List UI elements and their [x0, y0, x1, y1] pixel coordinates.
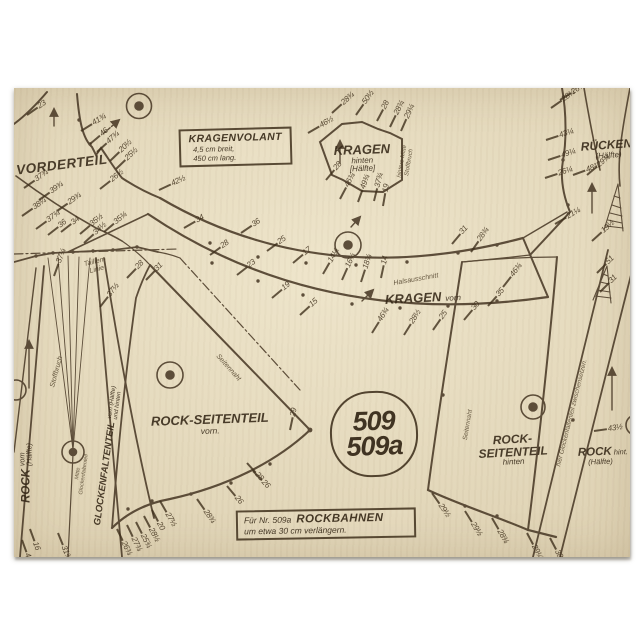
pleat-fan-lines: [48, 256, 90, 450]
pattern-line-art: [0, 0, 644, 644]
label-kragen-vorn-sub: vorn: [445, 294, 461, 303]
measure-value: 19: [381, 183, 390, 193]
label-rock-hinten-sub2: (Hälfte): [588, 457, 628, 466]
tick-line: [546, 135, 559, 140]
label-kragen-vorn-title: KRAGEN: [385, 290, 442, 307]
rockbahnen-note-box: Für Nr. 509a ROCKBAHNEN um etwa 30 cm ve…: [236, 507, 416, 540]
tick-line: [573, 170, 586, 176]
rockbahnen-prefix: Für Nr. 509a: [244, 515, 292, 526]
tick-line: [21, 540, 27, 553]
pattern-number-2: 509a: [346, 433, 403, 460]
label-rock-seitenteil-vorn: ROCK-SEITENTEIL vorn.: [151, 411, 269, 438]
tick-line: [464, 511, 472, 523]
tick-line: [159, 501, 167, 513]
tick-line: [126, 525, 133, 537]
tick-line: [380, 265, 384, 278]
product-photo: { "colors": { "paper": "#e7dcbd", "ink":…: [0, 0, 644, 644]
tick-line: [57, 533, 63, 545]
label-rock-vorn-sub2: (Hälfte): [27, 443, 34, 466]
tick-line: [29, 529, 35, 542]
tick-line: [548, 155, 561, 160]
measure-value: 14: [380, 255, 390, 265]
pattern-number-oval: 509 509a: [329, 389, 420, 478]
label-rock-vorn: ROCK vorn (Hälfte): [20, 443, 35, 503]
label-rock-vorn-title: ROCK: [21, 469, 33, 503]
label-rock-hinten-sub1: hint.: [614, 448, 628, 456]
rockbahnen-title: ROCKBAHNEN: [296, 512, 383, 526]
label-rock-seitenteil-hinten: ROCK- SEITENTEIL hinten: [477, 431, 548, 468]
tick-line: [289, 417, 293, 430]
label-rock-vorn-sub1: vorn: [20, 443, 27, 466]
tick-line: [373, 188, 377, 201]
tick-line: [159, 184, 171, 191]
label-kragen-hinten: KRAGEN hinten [Hälfte]: [333, 142, 390, 174]
tick-line: [53, 264, 59, 277]
measure-value: 29: [289, 407, 299, 417]
tick-line: [389, 115, 396, 127]
pattern-sheet-overlay: 2341¾4647¾20½25½26½37¾39¾29¾38¼42½3437¾3…: [0, 0, 644, 644]
tick-line: [545, 173, 558, 178]
tick-line: [341, 268, 347, 280]
tick-line: [526, 533, 533, 545]
kragenvolant-info-box: KRAGENVOLANT 4,5 cm breit, 450 cm lang.: [179, 127, 293, 168]
tick-line: [135, 522, 142, 534]
tick-line: [382, 193, 385, 206]
kragenvolant-line2: 450 cm lang.: [193, 152, 284, 163]
kragenvolant-title: KRAGENVOLANT: [187, 131, 284, 146]
tick-line: [357, 190, 363, 203]
rockbahnen-line2: um etwa 30 cm verlängern.: [244, 524, 408, 537]
label-rock-hinten: ROCK hint. (Hälfte): [578, 445, 629, 467]
tick-line: [360, 269, 365, 282]
tick-line: [549, 538, 556, 550]
label-rueckenteil: RÜCKENTEIL (Hälfte): [580, 135, 644, 161]
tick-line: [116, 529, 123, 541]
tick-line: [594, 429, 607, 432]
tick-line: [491, 518, 499, 530]
tick-line: [143, 516, 150, 528]
tick-line: [400, 119, 406, 131]
tick-line: [151, 510, 158, 522]
